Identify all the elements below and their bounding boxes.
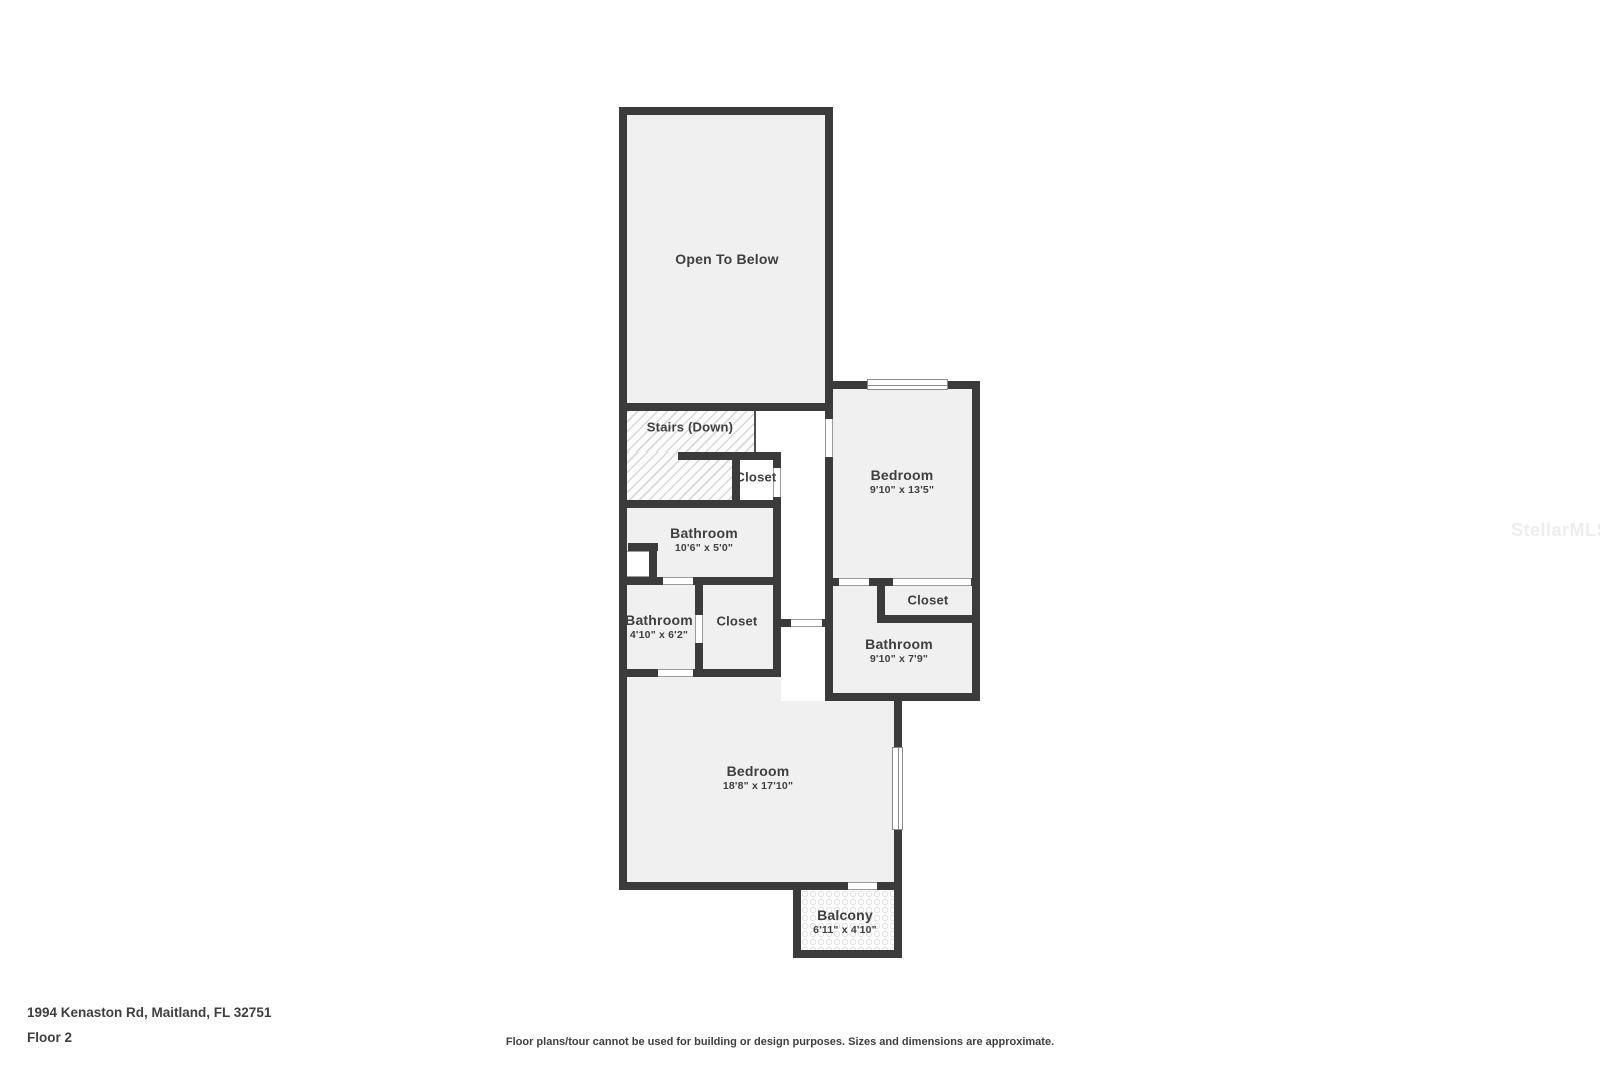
room-label-closet-mid: Closet xyxy=(717,614,758,631)
door-opening xyxy=(825,419,833,457)
room-name: Open To Below xyxy=(675,250,778,268)
wall xyxy=(619,107,833,115)
room-name: Bathroom xyxy=(865,635,933,653)
room-name: Bedroom xyxy=(870,466,934,484)
stellar-mls-watermark: StellarMLS xyxy=(1511,520,1600,541)
wall xyxy=(972,381,980,701)
door-opening xyxy=(791,619,822,627)
room-name: Stairs (Down) xyxy=(647,420,733,437)
room-name: Closet xyxy=(736,470,777,487)
wall xyxy=(825,107,833,419)
wall xyxy=(619,577,781,585)
wall xyxy=(678,452,781,460)
room-name: Bedroom xyxy=(723,762,793,780)
room-dimensions: 6'11" x 4'10" xyxy=(813,924,877,938)
room-label-stairs: Stairs (Down) xyxy=(647,420,733,437)
wall xyxy=(894,882,902,958)
window xyxy=(867,379,948,390)
wall xyxy=(793,882,801,958)
wall xyxy=(825,457,833,701)
door-opening xyxy=(695,615,703,643)
door-opening xyxy=(839,578,869,586)
room-label-closet-right: Closet xyxy=(908,593,949,610)
disclaimer-text: Floor plans/tour cannot be used for buil… xyxy=(506,1036,1054,1048)
door-opening xyxy=(663,577,693,585)
wall xyxy=(877,615,980,623)
room-dimensions: 4'10" x 6'2" xyxy=(625,629,693,643)
window xyxy=(892,747,903,830)
room-name: Closet xyxy=(908,593,949,610)
wall xyxy=(619,500,781,508)
room-label-closet-stairs: Closet xyxy=(736,470,777,487)
wall xyxy=(619,403,833,411)
wall xyxy=(877,586,885,623)
room-label-bathroom-right: Bathroom 9'10" x 7'9" xyxy=(865,635,933,667)
room-label-bedroom-1: Bedroom 18'8" x 17'10" xyxy=(723,762,793,794)
address-text: 1994 Kenaston Rd, Maitland, FL 32751 xyxy=(27,1005,271,1020)
wall xyxy=(793,950,902,958)
wall xyxy=(649,551,657,577)
floor-plan-page: Open To Below Stairs (Down) Closet Bedro… xyxy=(0,0,1600,1066)
room-name: Closet xyxy=(717,614,758,631)
room-name: Bathroom xyxy=(670,524,738,542)
room-label-open-to-below: Open To Below xyxy=(675,250,778,268)
room-dimensions: 9'10" x 7'9" xyxy=(865,653,933,667)
room-dimensions: 18'8" x 17'10" xyxy=(723,780,793,794)
room-dimensions: 10'6" x 5'0" xyxy=(670,542,738,556)
wall xyxy=(825,693,980,701)
room-label-bathroom-410: Bathroom 4'10" x 6'2" xyxy=(625,611,693,643)
door-opening xyxy=(658,669,693,677)
balcony-door-opening xyxy=(848,882,877,890)
room-label-bedroom-2: Bedroom 9'10" x 13'5" xyxy=(870,466,934,498)
stair-edge-line xyxy=(754,411,756,452)
wall xyxy=(628,543,658,551)
floor-label: Floor 2 xyxy=(27,1030,72,1045)
room-dimensions: 9'10" x 13'5" xyxy=(870,484,934,498)
bathroom-door-notch xyxy=(627,551,649,577)
room-name: Balcony xyxy=(813,906,877,924)
closet-sliding-opening xyxy=(893,578,971,586)
hallway-vestibule xyxy=(781,627,825,701)
room-label-balcony: Balcony 6'11" x 4'10" xyxy=(813,906,877,938)
room-label-bathroom-106: Bathroom 10'6" x 5'0" xyxy=(670,524,738,556)
wall xyxy=(619,107,627,890)
room-name: Bathroom xyxy=(625,611,693,629)
